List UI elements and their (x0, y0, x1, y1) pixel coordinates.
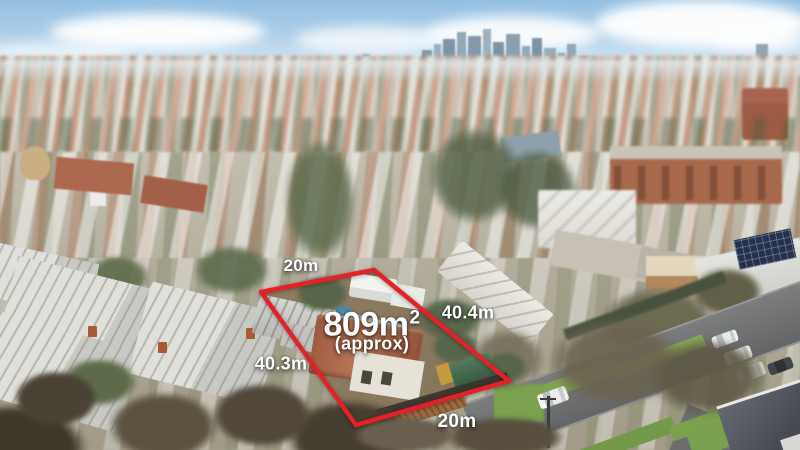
area-qualifier: (approx) (335, 334, 409, 355)
dimension-label-left: 40.3m (255, 354, 308, 375)
lot-boundary-svg (0, 0, 800, 450)
dimension-label-top: 20m (284, 256, 319, 276)
area-superscript: 2 (409, 308, 419, 329)
dimension-label-right: 40.4m (442, 303, 495, 324)
dimension-label-bottom: 20m (438, 411, 477, 433)
aerial-property-photo: 20m 40.4m 40.3m 20m 809m2 (approx) (0, 0, 800, 450)
